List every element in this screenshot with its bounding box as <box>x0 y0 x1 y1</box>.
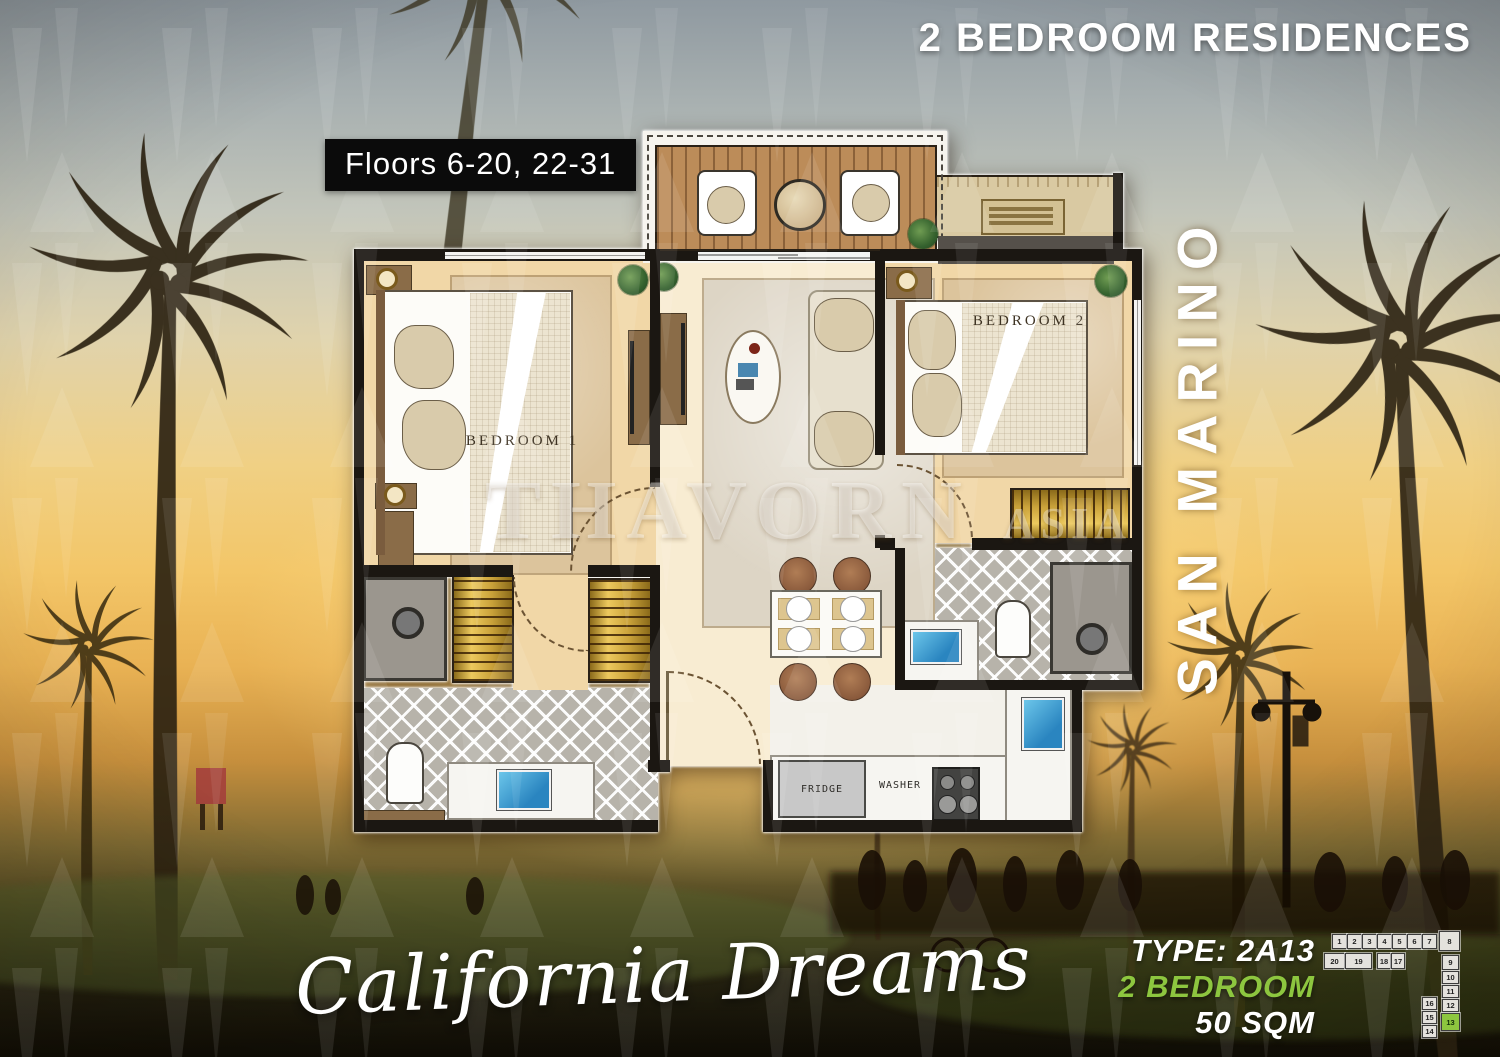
ac-louver <box>989 221 1053 225</box>
lounge-chair-2 <box>840 170 900 236</box>
bedroom2-window <box>1134 300 1141 465</box>
street-lamp <box>1252 672 1321 907</box>
ac-louver <box>989 214 1053 218</box>
bedroom1-window <box>445 252 645 259</box>
wall <box>763 760 773 832</box>
dining-chair <box>833 663 871 701</box>
keyplan-unit-12: 12 <box>1442 999 1459 1012</box>
master-wardrobe-1 <box>452 575 514 683</box>
bedroom1-label: BEDROOM 1 <box>435 433 610 450</box>
keyplan-unit-6: 6 <box>1407 934 1422 949</box>
wall <box>354 820 658 832</box>
fridge-label: FRIDGE <box>801 784 843 795</box>
bedroom2-label: BEDROOM 2 <box>962 313 1097 330</box>
palm-tree-left-large <box>28 133 309 980</box>
pillow <box>394 325 454 389</box>
coffee-table-book <box>738 363 758 377</box>
burner <box>960 775 975 790</box>
bathroom2-shower <box>1050 562 1132 674</box>
unit-bedrooms: 2 BEDROOM <box>1118 969 1315 1005</box>
keyplan-unit-7: 7 <box>1422 934 1437 949</box>
balcony-slider-door <box>698 252 870 260</box>
master-sink <box>497 770 551 810</box>
bedroom1-plant <box>618 265 648 295</box>
keyplan-unit-18: 18 <box>1377 953 1391 969</box>
bed2-headboard <box>896 300 905 455</box>
balcony-round-table <box>774 179 826 231</box>
coffee-table-tray <box>736 379 754 390</box>
plate <box>786 626 812 652</box>
master-toilet <box>386 742 424 804</box>
brand-watermark: THAVORN ASIA <box>485 462 1132 559</box>
bathroom2-sink <box>911 630 961 664</box>
fridge: FRIDGE <box>778 760 866 818</box>
keyplan-unit-15: 15 <box>1422 1011 1437 1024</box>
dining-chair <box>779 663 817 701</box>
master-wardrobe-2 <box>588 578 652 683</box>
unit-info: TYPE: 2A13 2 BEDROOM 50 SQM <box>1118 933 1315 1041</box>
living-tv-screen <box>681 323 685 415</box>
wall <box>880 249 1142 261</box>
keyplan-unit-8: 8 <box>1439 931 1460 951</box>
sofa-cushion <box>814 411 874 467</box>
keyplan-unit-19: 19 <box>1345 953 1372 969</box>
stove <box>932 767 980 821</box>
wall <box>763 820 1082 832</box>
unit-area: 50 SQM <box>1118 1005 1315 1041</box>
pillow <box>908 310 956 370</box>
keyplan: 1234567820191817910111213161514 <box>1322 928 1472 1046</box>
wall <box>650 261 660 487</box>
keyplan-unit-10: 10 <box>1442 971 1459 984</box>
wall <box>588 565 660 577</box>
table-lamp <box>896 270 918 292</box>
sofa-cushion <box>814 298 874 352</box>
burner <box>938 795 957 814</box>
lifeguard-tower <box>196 768 226 830</box>
chair-cushion <box>707 186 745 224</box>
keyplan-unit-9: 9 <box>1442 955 1459 970</box>
ac-unit <box>981 199 1065 235</box>
wall <box>1113 173 1123 253</box>
keyplan-unit-1: 1 <box>1332 934 1347 949</box>
burner <box>940 775 955 790</box>
balcony-plant <box>908 219 938 249</box>
pillow <box>912 373 962 437</box>
building-name-vertical: SAN MARINO <box>1165 215 1230 696</box>
ac-louver <box>989 207 1053 211</box>
page-title: 2 BEDROOM RESIDENCES <box>919 16 1472 61</box>
entry-door-leaf <box>666 671 669 764</box>
burner <box>959 795 978 814</box>
unit-type: TYPE: 2A13 <box>1118 933 1315 969</box>
table-lamp <box>376 268 398 290</box>
wall <box>354 249 364 832</box>
keyplan-unit-3: 3 <box>1362 934 1377 949</box>
wall <box>895 680 1142 690</box>
keyplan-unit-5: 5 <box>1392 934 1407 949</box>
wall <box>875 261 885 455</box>
poster: { "header": { "title": "2 BEDROOM RESIDE… <box>0 0 1500 1057</box>
brand-watermark-text: THAVORN <box>485 464 972 557</box>
wall <box>1072 680 1082 832</box>
keyplan-unit-20: 20 <box>1324 953 1345 969</box>
wall <box>354 565 513 577</box>
brand-watermark-suffix: ASIA <box>1003 499 1132 548</box>
wall <box>895 548 905 690</box>
keyplan-unit-16: 16 <box>1422 997 1437 1010</box>
bathroom2-toilet <box>995 600 1031 658</box>
washer-label: WASHER <box>870 780 930 791</box>
shower-head <box>392 607 424 639</box>
plate <box>840 626 866 652</box>
plate <box>840 596 866 622</box>
table-lamp <box>384 484 406 506</box>
keyplan-unit-2: 2 <box>1347 934 1362 949</box>
keyplan-unit-13: 13 <box>1441 1013 1460 1031</box>
keyplan-unit-11: 11 <box>1442 985 1459 998</box>
shower-head <box>1076 623 1108 655</box>
coffee-table-bowl <box>749 343 760 354</box>
wall <box>650 570 660 766</box>
kitchen-sink <box>1022 698 1064 750</box>
keyplan-unit-17: 17 <box>1391 953 1405 969</box>
lounge-chair-1 <box>697 170 757 236</box>
bed1-headboard <box>376 290 385 555</box>
chair-cushion <box>852 184 890 222</box>
keyplan-unit-14: 14 <box>1422 1025 1437 1038</box>
bedroom1-tv-screen <box>630 341 634 434</box>
bedroom2-plant <box>1095 265 1127 297</box>
plate <box>786 596 812 622</box>
keyplan-unit-4: 4 <box>1377 934 1392 949</box>
floors-badge: Floors 6-20, 22-31 <box>325 139 636 191</box>
